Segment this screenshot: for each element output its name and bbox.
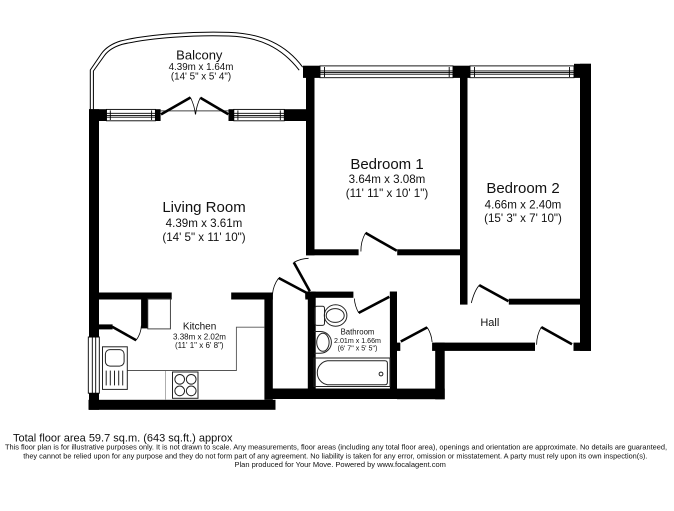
- svg-text:Balcony: Balcony: [176, 47, 223, 62]
- svg-text:3.64m x 3.08m: 3.64m x 3.08m: [349, 173, 426, 186]
- svg-text:Hall: Hall: [480, 317, 499, 329]
- svg-text:Plan produced for Your Move. P: Plan produced for Your Move. Powered by …: [235, 460, 446, 469]
- svg-text:4.39m x 3.61m: 4.39m x 3.61m: [166, 217, 243, 230]
- svg-text:Living Room: Living Room: [162, 199, 245, 216]
- svg-text:Bathroom: Bathroom: [341, 328, 375, 337]
- svg-text:Bedroom 1: Bedroom 1: [350, 156, 423, 173]
- svg-text:(15' 3" x 7' 10"): (15' 3" x 7' 10"): [484, 212, 562, 225]
- svg-text:(11' 1" x 6' 8"): (11' 1" x 6' 8"): [175, 341, 224, 350]
- svg-text:Kitchen: Kitchen: [183, 322, 216, 333]
- svg-text:(6' 7" x 5' 5"): (6' 7" x 5' 5"): [338, 345, 378, 353]
- svg-text:(14' 5" x 5' 4"): (14' 5" x 5' 4"): [171, 72, 231, 83]
- svg-text:Bedroom 2: Bedroom 2: [486, 180, 559, 197]
- svg-text:(14' 5" x 11' 10"): (14' 5" x 11' 10"): [162, 231, 245, 244]
- svg-text:(11' 11" x 10' 1"): (11' 11" x 10' 1"): [346, 187, 429, 200]
- svg-text:4.66m x 2.40m: 4.66m x 2.40m: [485, 199, 562, 212]
- svg-text:This floor plan is for illustr: This floor plan is for illustrative purp…: [5, 443, 667, 452]
